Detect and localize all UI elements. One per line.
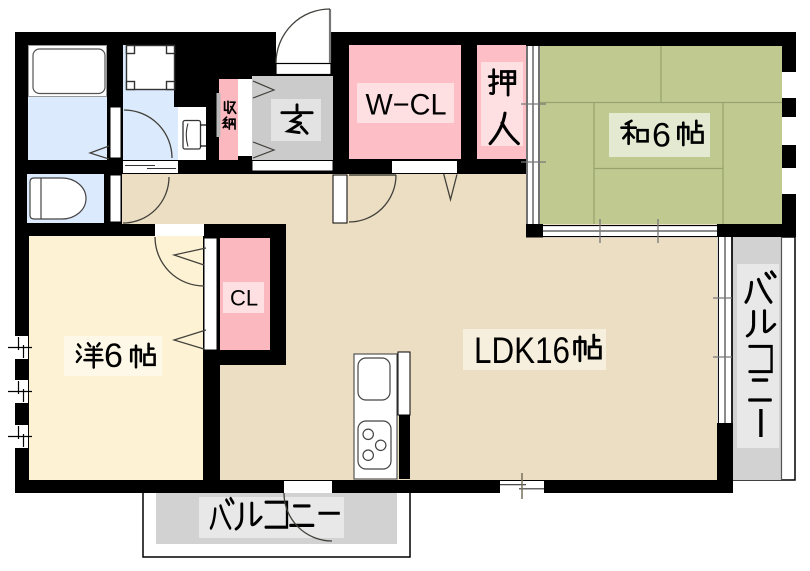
svg-text:W−CL: W−CL (366, 89, 447, 122)
svg-text:6: 6 (652, 117, 671, 155)
svg-text:6: 6 (104, 337, 123, 375)
svg-text:CL: CL (230, 286, 258, 311)
svg-text:LDK16: LDK16 (474, 330, 570, 371)
